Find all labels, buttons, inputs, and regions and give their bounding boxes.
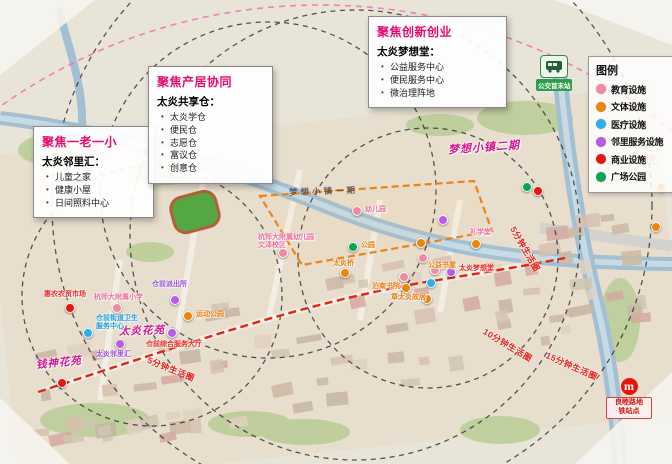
building: [358, 279, 368, 288]
legend-dot: [596, 137, 606, 147]
building: [125, 418, 142, 435]
callout-header: 太炎邻里汇：: [42, 154, 146, 169]
poi-dot-neighborhood[interactable]: [170, 295, 180, 305]
legend-row: 邻里服务设施: [596, 135, 672, 148]
building: [540, 336, 550, 346]
poi-dot-culture[interactable]: [340, 268, 350, 278]
building: [254, 334, 272, 349]
bus-icon: [540, 55, 568, 78]
bus-terminal-label: 公交首末站: [536, 79, 572, 91]
legend-label: 医疗设施: [611, 118, 646, 131]
poi-dot-culture[interactable]: [401, 283, 411, 293]
map-legend: 图例 教育设施文体设施医疗设施邻里服务设施商业设施广场公园: [588, 56, 672, 193]
callout-item: 太炎学仓: [170, 112, 265, 123]
legend-items: 教育设施文体设施医疗设施邻里服务设施商业设施广场公园: [596, 83, 672, 184]
poi-dot-commercial[interactable]: [533, 186, 543, 196]
poi-label: 仓前综合服务大厅: [146, 341, 202, 349]
callout-item: 微治理阵地: [390, 88, 499, 99]
legend-label: 商业设施: [611, 153, 646, 166]
callout-item-list: 儿童之家健康小屋日间照料中心: [42, 172, 146, 209]
legend-row: 教育设施: [596, 83, 672, 96]
area-label: 梦想小镇一期: [289, 184, 358, 198]
poi-label: 仓前派出所: [152, 281, 187, 289]
legend-row: 广场公园: [596, 170, 672, 183]
poi-dot-culture[interactable]: [651, 222, 661, 232]
metro-station-label: 良睦路地铁站点: [606, 397, 652, 419]
poi-dot-medical[interactable]: [426, 278, 436, 288]
metro-station-badge[interactable]: m 良睦路地铁站点: [606, 378, 652, 419]
callout-header: 太炎梦想堂：: [377, 44, 499, 59]
poi-label: 公园: [361, 242, 375, 250]
poi-dot-commercial[interactable]: [65, 303, 75, 313]
poi-dot-education[interactable]: [418, 253, 428, 263]
poi-label: 太炎桥: [333, 260, 354, 268]
callout-elderly-children: 聚焦一老一小 太炎邻里汇： 儿童之家健康小屋日间照料中心: [33, 126, 154, 218]
bus-terminal-badge[interactable]: 公交首末站: [536, 55, 572, 91]
building: [495, 309, 509, 323]
legend-dot: [596, 84, 606, 94]
building: [209, 359, 224, 374]
legend-dot: [596, 119, 606, 129]
building: [578, 259, 591, 274]
poi-label: 太炎邻里汇: [96, 351, 131, 359]
legend-label: 文体设施: [611, 100, 646, 113]
poi-dot-education[interactable]: [399, 272, 409, 282]
building: [586, 288, 597, 300]
callout-item: 公益服务中心: [390, 62, 499, 73]
building: [546, 225, 569, 241]
callout-item: 便民仓: [170, 125, 265, 136]
poi-dot-neighborhood[interactable]: [115, 339, 125, 349]
callout-title: 聚焦创新创业: [377, 23, 499, 40]
callout-item: 创意仓: [170, 163, 265, 174]
callout-item: 日间照料中心: [55, 198, 146, 209]
callout-item: 健康小屋: [55, 185, 146, 196]
poi-label: 杭师大附属小学: [94, 294, 143, 302]
building: [351, 359, 368, 371]
poi-dot-park[interactable]: [348, 242, 358, 252]
callout-item-list: 公益服务中心便民服务中心微治理阵地: [377, 62, 499, 99]
poi-label: 杭师大附属幼儿园文泽校区: [258, 234, 314, 251]
legend-row: 文体设施: [596, 100, 672, 113]
legend-label: 教育设施: [611, 83, 646, 96]
planning-map-page: 惠农农贸市场杭师大附属小学仓前派出所运动公园仓前街道卫生服务中心仓前综合服务大厅…: [0, 0, 672, 464]
callout-header: 太炎共享仓：: [157, 94, 265, 109]
poi-dot-culture[interactable]: [416, 238, 426, 248]
callout-title: 聚焦一老一小: [42, 133, 146, 150]
poi-label: 太炎梦想堂: [459, 265, 494, 273]
legend-row: 医疗设施: [596, 118, 672, 131]
callout-industry-living: 聚焦产居协同 太炎共享仓： 太炎学仓便民仓志愿仓富议仓创意仓: [148, 66, 273, 184]
poi-dot-park[interactable]: [522, 182, 532, 192]
poi-dot-education[interactable]: [112, 303, 122, 313]
building: [166, 411, 181, 420]
legend-label: 邻里服务设施: [611, 135, 663, 148]
callout-innovation: 聚焦创新创业 太炎梦想堂： 公益服务中心便民服务中心微治理阵地: [368, 16, 507, 108]
callout-title: 聚焦产居协同: [157, 73, 265, 90]
poi-label: 运动公园: [196, 311, 224, 319]
poi-label: 幼儿园: [365, 206, 386, 214]
legend-dot: [596, 102, 606, 112]
building: [326, 391, 349, 406]
building: [494, 270, 512, 286]
poi-dot-neighborhood[interactable]: [167, 328, 177, 338]
legend-title: 图例: [596, 62, 672, 78]
poi-label: 公益书屋: [428, 262, 456, 270]
callout-item: 志愿仓: [170, 138, 265, 149]
poi-dot-neighborhood[interactable]: [438, 215, 448, 225]
legend-dot: [596, 172, 606, 182]
poi-label: 仓前街道卫生服务中心: [96, 315, 138, 332]
poi-dot-commercial[interactable]: [57, 378, 67, 388]
legend-row: 商业设施: [596, 153, 672, 166]
legend-label: 广场公园: [611, 170, 646, 183]
callout-item: 便民服务中心: [390, 75, 499, 86]
poi-dot-culture[interactable]: [471, 239, 481, 249]
metro-icon: m: [621, 378, 638, 395]
legend-dot: [596, 154, 606, 164]
building: [621, 250, 642, 267]
building: [66, 416, 84, 431]
poi-dot-medical[interactable]: [83, 328, 93, 338]
building: [448, 355, 464, 371]
poi-label: 章太炎故居: [391, 294, 426, 302]
callout-item: 富议仓: [170, 150, 265, 161]
building: [317, 377, 329, 386]
callout-item: 儿童之家: [55, 172, 146, 183]
building: [97, 425, 111, 436]
poi-label: 泊南书院: [372, 283, 400, 291]
building: [419, 356, 430, 365]
building: [387, 351, 404, 363]
building: [190, 419, 202, 434]
callout-item-list: 太炎学仓便民仓志愿仓富议仓创意仓: [157, 112, 265, 174]
poi-label: 惠农农贸市场: [44, 291, 86, 299]
poi-dot-education[interactable]: [352, 206, 362, 216]
poi-dot-culture[interactable]: [183, 311, 193, 321]
poi-label: 礼学堂: [470, 229, 491, 237]
